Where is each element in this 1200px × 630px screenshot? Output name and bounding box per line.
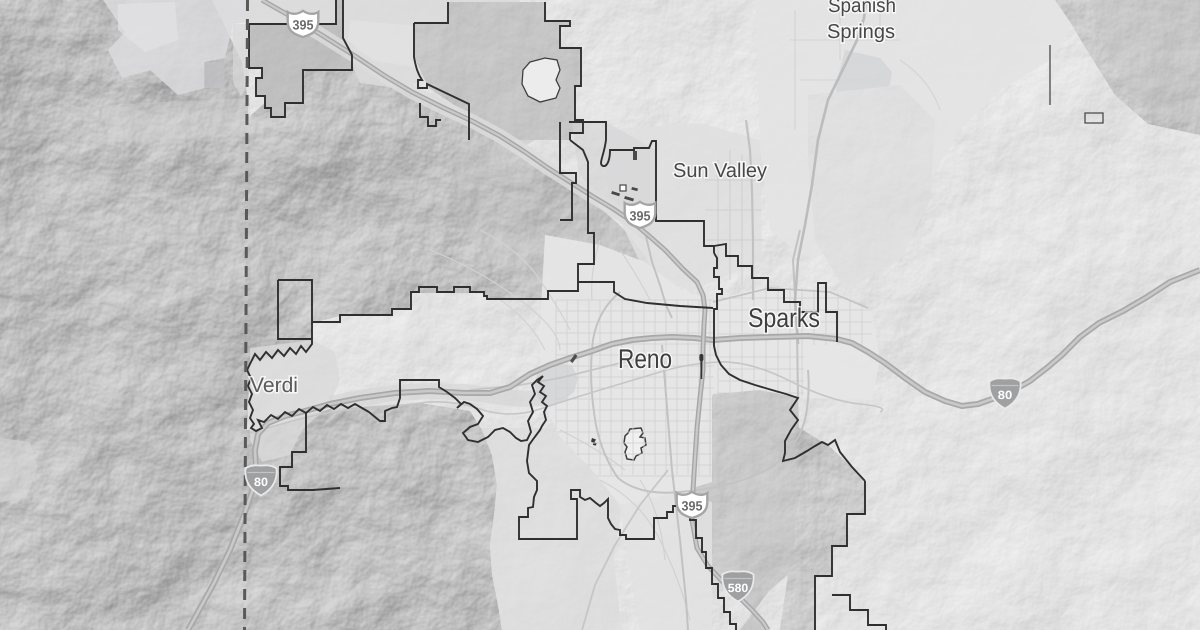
svg-text:Spanish: Spanish [828,0,896,17]
svg-text:Verdi: Verdi [250,374,298,397]
svg-text:Reno: Reno [618,344,672,374]
svg-text:80: 80 [254,475,268,489]
svg-text:Sparks: Sparks [748,303,820,333]
svg-text:Sun Valley: Sun Valley [673,160,767,182]
svg-text:580: 580 [728,581,749,595]
svg-text:Springs: Springs [827,21,895,43]
svg-text:395: 395 [630,208,651,223]
svg-text:395: 395 [682,498,703,513]
svg-text:80: 80 [998,388,1013,402]
svg-text:395: 395 [293,17,314,32]
